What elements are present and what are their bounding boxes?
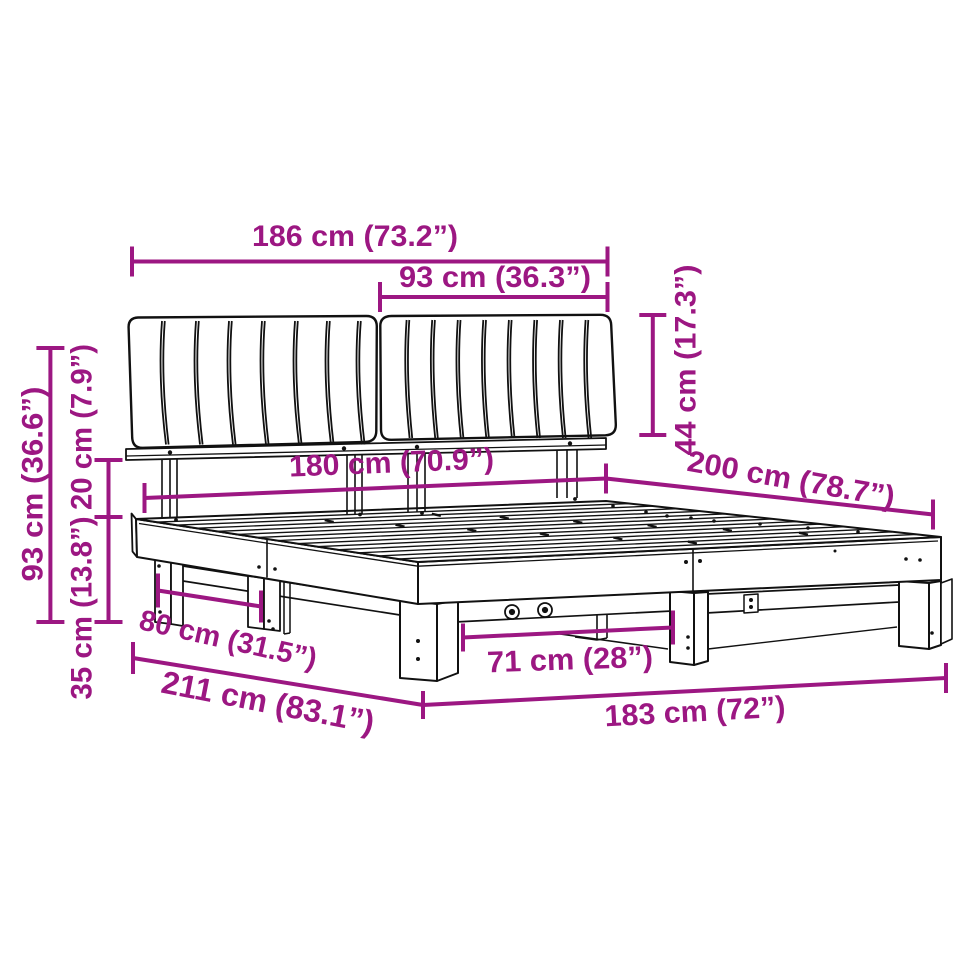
- svg-text:35 cm (13.8”): 35 cm (13.8”): [66, 517, 99, 700]
- svg-text:93 cm (36.3”): 93 cm (36.3”): [399, 261, 591, 294]
- svg-text:186 cm (73.2”): 186 cm (73.2”): [252, 220, 458, 253]
- svg-text:44 cm (17.3”): 44 cm (17.3”): [670, 265, 703, 456]
- svg-text:20 cm (7.9”): 20 cm (7.9”): [66, 344, 99, 510]
- svg-text:71 cm (28”): 71 cm (28”): [486, 641, 653, 680]
- svg-text:93 cm (36.6”): 93 cm (36.6”): [17, 387, 50, 582]
